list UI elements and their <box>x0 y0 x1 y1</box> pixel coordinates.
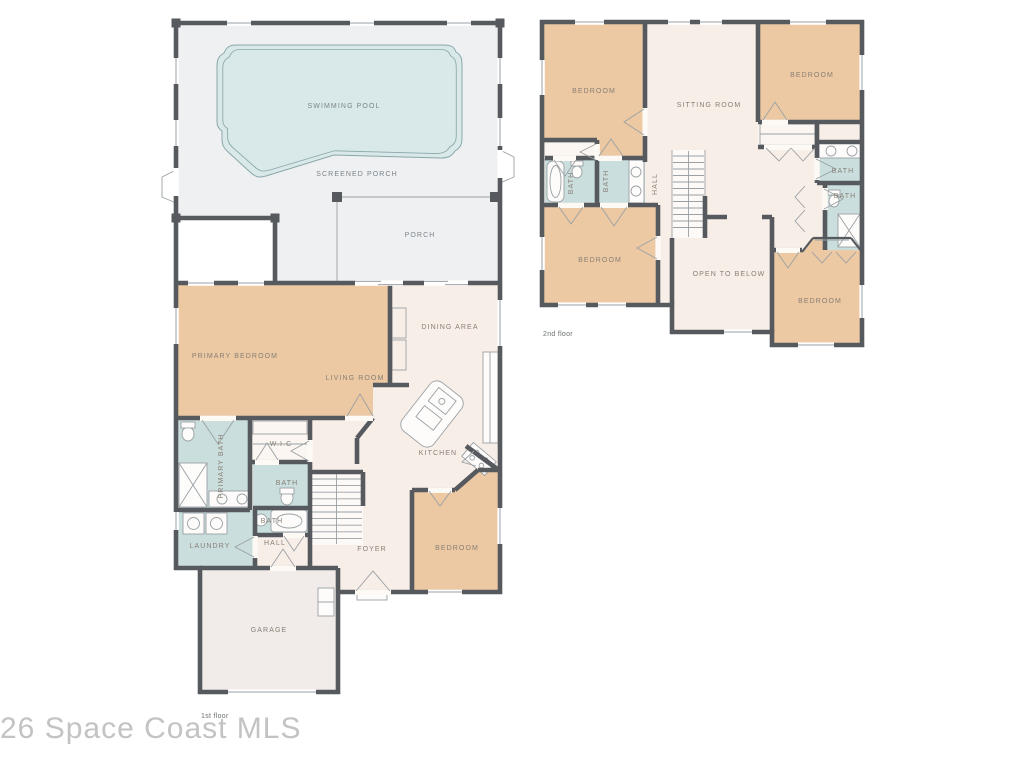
room-label-bath-left-tub: BATH <box>568 172 575 195</box>
second-floor-caption: 2nd floor <box>543 331 573 338</box>
floor-plan-page: SWIMMING POOL SCREENED PORCH PORCH DININ… <box>0 0 1024 768</box>
room-label-sitting-room: SITTING ROOM <box>677 102 742 109</box>
room-label-bath-right-lower: BATH <box>834 193 857 200</box>
room-label-bath-left-vanity: BATH <box>603 170 610 193</box>
room-label-wic: W.I.C <box>270 441 293 448</box>
bedroom-bottom-left-floor <box>542 205 658 305</box>
kitchen-counter <box>483 352 498 443</box>
room-label-porch: PORCH <box>405 232 436 239</box>
room-label-foyer: FOYER <box>357 546 387 553</box>
room-label-primary-bath: PRIMARY BATH <box>218 434 225 499</box>
room-label-living-room: LIVING ROOM <box>326 375 385 382</box>
mls-watermark: 26 Space Coast MLS <box>0 712 302 746</box>
second-floor-plan: BEDROOM SITTING ROOM BEDROOM BATH BATH H… <box>539 19 864 347</box>
room-label-bedroom-tl: BEDROOM <box>572 88 616 95</box>
second-floor-room-fills <box>542 22 862 345</box>
room-label-swimming-pool: SWIMMING POOL <box>307 103 380 110</box>
room-label-bedroom-tr: BEDROOM <box>790 72 834 79</box>
room-label-primary-bedroom: PRIMARY BEDROOM <box>192 353 278 360</box>
room-label-garage: GARAGE <box>251 627 288 634</box>
bath-right-upper-fixtures <box>819 143 861 158</box>
first-floor-plan: SWIMMING POOL SCREENED PORCH PORCH DININ… <box>162 19 514 721</box>
room-label-dining-area: DINING AREA <box>421 324 478 331</box>
room-label-bath-lower: BATH <box>261 518 284 525</box>
closet-top-right <box>758 122 817 147</box>
bath-upper-toilet <box>280 488 294 505</box>
room-label-open-to-below: OPEN TO BELOW <box>693 271 766 278</box>
bath-left-vanity-fixtures <box>629 160 644 203</box>
room-label-laundry: LAUNDRY <box>189 543 230 550</box>
room-label-bedroom-bl: BEDROOM <box>578 257 622 264</box>
room-label-bedroom-br: BEDROOM <box>798 298 842 305</box>
room-label-hall-1f: HALL <box>264 540 286 547</box>
room-label-kitchen: KITCHEN <box>419 450 457 457</box>
room-label-screened-porch: SCREENED PORCH <box>316 171 398 178</box>
floor-plan-drawing: SWIMMING POOL SCREENED PORCH PORCH DININ… <box>0 0 1024 768</box>
room-label-bath-upper: BATH <box>276 480 299 487</box>
room-label-bedroom-1f: BEDROOM <box>435 545 479 552</box>
garage-shelves <box>318 588 334 616</box>
room-label-hall-2f: HALL <box>652 173 659 195</box>
room-label-bath-right-upper: BATH <box>832 168 855 175</box>
